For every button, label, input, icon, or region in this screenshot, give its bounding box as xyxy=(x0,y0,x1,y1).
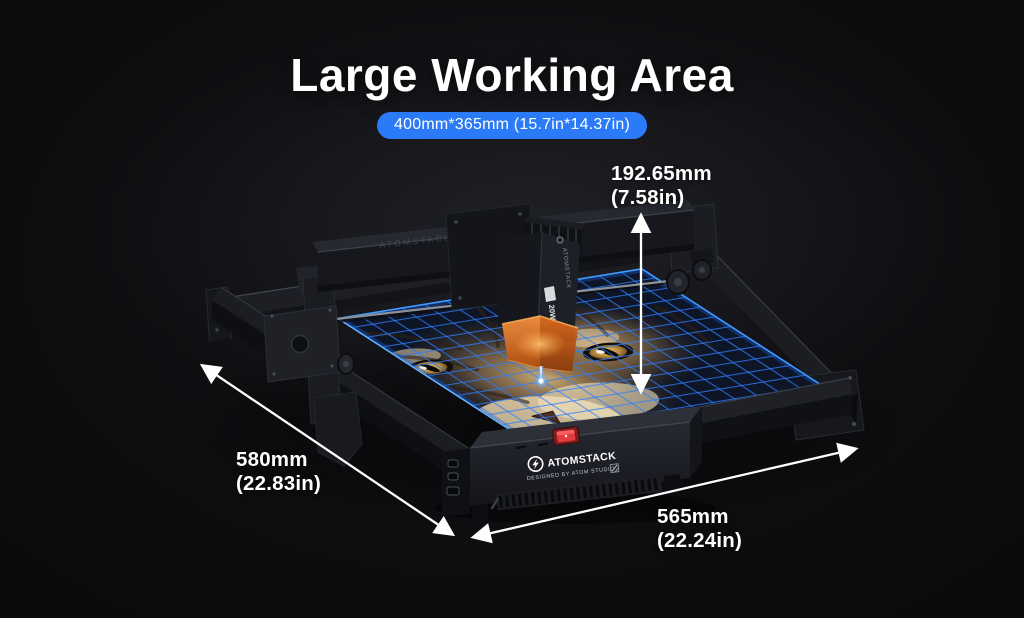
height-mm: 192.65mm xyxy=(611,162,712,186)
power-switch xyxy=(552,426,580,445)
dimension-label-height: 192.65mm (7.58in) xyxy=(611,162,712,210)
dimension-label-width: 565mm (22.24in) xyxy=(657,505,742,553)
height-in: (7.58in) xyxy=(611,186,712,210)
hero-banner: ATOMSTACK xyxy=(0,0,1024,618)
work-area-badge: 400mm*365mm (15.7in*14.37in) xyxy=(377,112,647,139)
side-ports xyxy=(447,460,459,495)
width-mm: 565mm xyxy=(657,505,742,529)
depth-mm: 580mm xyxy=(236,448,321,472)
dimension-label-depth: 580mm (22.83in) xyxy=(236,448,321,496)
depth-in: (22.83in) xyxy=(236,472,321,496)
width-in: (22.24in) xyxy=(657,529,742,553)
page-title: Large Working Area xyxy=(0,48,1024,102)
